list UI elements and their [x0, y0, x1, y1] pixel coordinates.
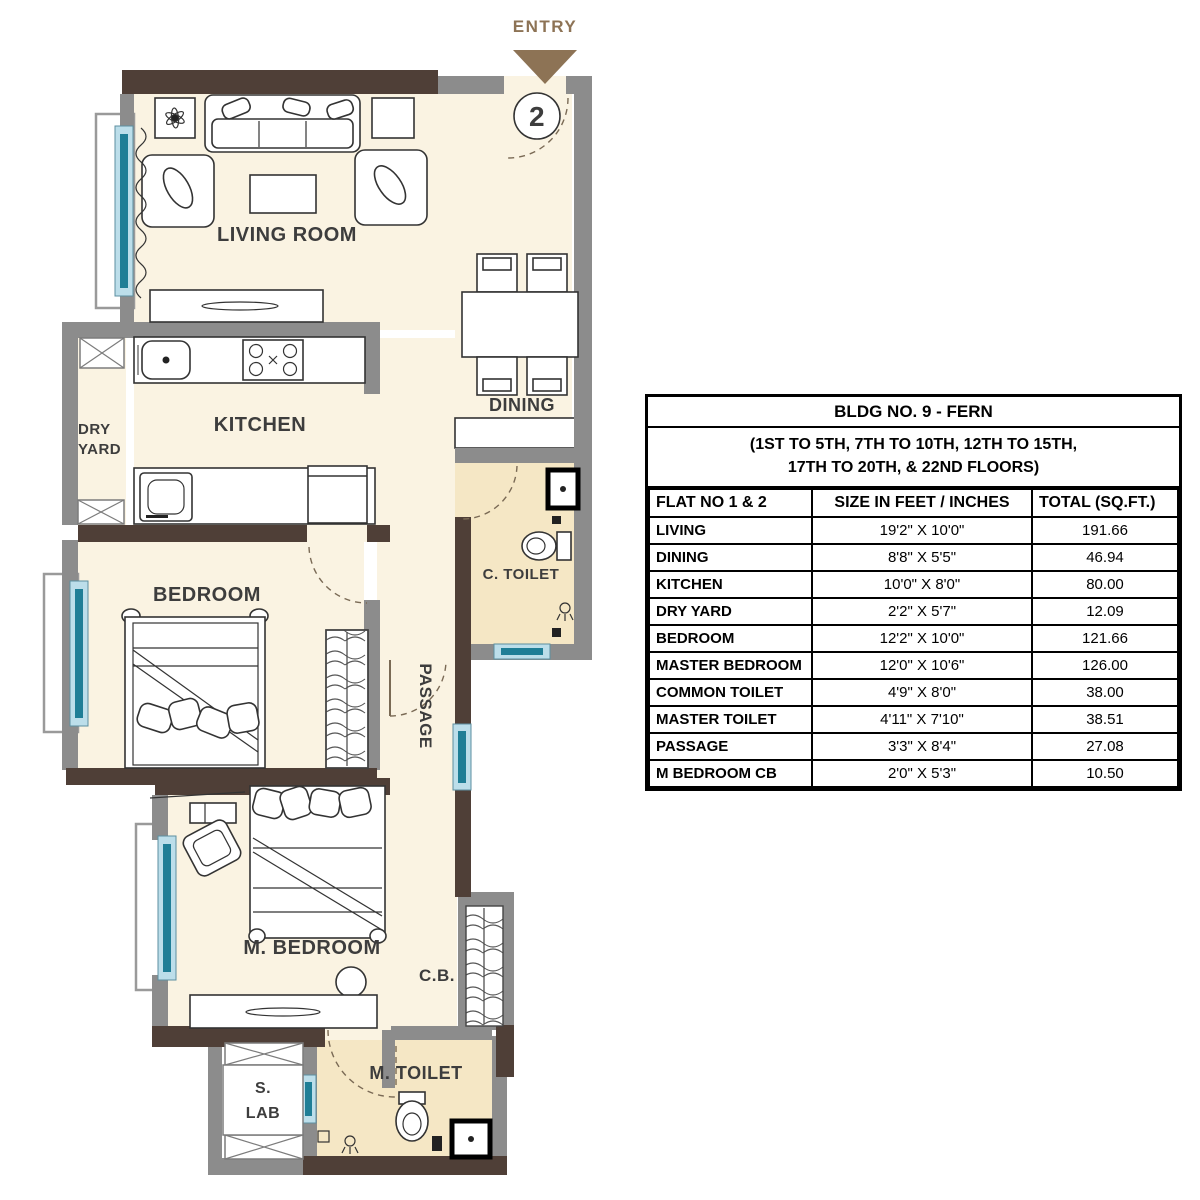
table-row: BEDROOM12'2" X 10'0"121.66: [649, 625, 1178, 652]
cell-size: 19'2" X 10'0": [812, 517, 1032, 544]
entry-label: ENTRY: [513, 17, 578, 36]
size-table-body: LIVING19'2" X 10'0"191.66DINING8'8" X 5'…: [649, 517, 1178, 787]
master-toilet-label: M. TOILET: [369, 1063, 462, 1083]
cell-total: 121.66: [1032, 625, 1178, 652]
cell-size: 12'2" X 10'0": [812, 625, 1032, 652]
plant-stand: [155, 98, 195, 138]
cell-size: 4'9" X 8'0": [812, 679, 1032, 706]
cell-room: LIVING: [649, 517, 812, 544]
table-row: M BEDROOM CB2'0" X 5'3"10.50: [649, 760, 1178, 787]
cell-size: 2'2" X 5'7": [812, 598, 1032, 625]
dining-chair: [477, 254, 517, 292]
s-lab-label-1: S.: [255, 1080, 271, 1097]
coffee-table: [250, 175, 316, 213]
bedroom-bed: [122, 609, 268, 768]
table-header-row: FLAT NO 1 & 2 SIZE IN FEET / INCHES TOTA…: [649, 489, 1178, 517]
cell-size: 10'0" X 8'0": [812, 571, 1032, 598]
unit-number: 2: [529, 101, 545, 132]
cell-size: 4'11" X 7'10": [812, 706, 1032, 733]
master-bedroom-label: M. BEDROOM: [243, 937, 380, 959]
wash-basin: [452, 1121, 490, 1157]
cell-total: 46.94: [1032, 544, 1178, 571]
dining-table: [462, 292, 578, 357]
wc: [396, 1092, 428, 1141]
master-bed: [249, 784, 386, 943]
living-room-label: LIVING ROOM: [217, 224, 357, 246]
cell-size: 8'8" X 5'5": [812, 544, 1032, 571]
dry-yard-duct-bottom: [78, 500, 124, 524]
size-table-grid: FLAT NO 1 & 2 SIZE IN FEET / INCHES TOTA…: [648, 488, 1179, 788]
table-row: PASSAGE3'3" X 8'4"27.08: [649, 733, 1178, 760]
window-passage: [453, 724, 471, 790]
kitchen-sink: [138, 341, 190, 379]
cell-total: 80.00: [1032, 571, 1178, 598]
table-subtitle: (1ST TO 5TH, 7TH TO 10TH, 12TH TO 15TH, …: [648, 428, 1179, 488]
cell-total: 10.50: [1032, 760, 1178, 787]
table-row: KITCHEN10'0" X 8'0"80.00: [649, 571, 1178, 598]
cell-room: MASTER BEDROOM: [649, 652, 812, 679]
s-lab-duct-top: [225, 1043, 303, 1065]
dresser-desk: [190, 995, 377, 1028]
cell-total: 38.00: [1032, 679, 1178, 706]
cell-size: 3'3" X 8'4": [812, 733, 1032, 760]
tap-icon: [552, 516, 561, 524]
area-table: BLDG NO. 9 - FERN (1ST TO 5TH, 7TH TO 10…: [645, 394, 1182, 791]
cell-total: 38.51: [1032, 706, 1178, 733]
cell-room: COMMON TOILET: [649, 679, 812, 706]
armchair-left: [142, 155, 214, 227]
cell-room: DINING: [649, 544, 812, 571]
table-row: MASTER TOILET4'11" X 7'10"38.51: [649, 706, 1178, 733]
dining-chair: [477, 357, 517, 395]
column-header-flat: FLAT NO 1 & 2: [649, 489, 812, 517]
cell-room: BEDROOM: [649, 625, 812, 652]
side-table: [372, 98, 414, 138]
s-lab-box: [223, 1065, 303, 1135]
kitchen-counter-top: [134, 337, 365, 383]
tv-console: [150, 290, 323, 322]
kitchen-counter-bottom: [134, 466, 375, 524]
table-row: DRY YARD2'2" X 5'7"12.09: [649, 598, 1178, 625]
floor-plan-page: ENTRY 2 LIVING ROOM DINING KITCHEN DRY Y…: [0, 0, 1200, 1200]
cell-room: MASTER TOILET: [649, 706, 812, 733]
passage-label: PASSAGE: [416, 663, 435, 748]
table-subtitle-line2: 17TH TO 20TH, & 22ND FLOORS): [648, 456, 1179, 479]
unit-number-badge: 2: [514, 93, 560, 139]
cell-size: 12'0" X 10'6": [812, 652, 1032, 679]
cell-total: 126.00: [1032, 652, 1178, 679]
bedroom-label: BEDROOM: [153, 584, 261, 606]
cell-room: KITCHEN: [649, 571, 812, 598]
s-lab-label-2: LAB: [246, 1105, 280, 1122]
cell-total: 191.66: [1032, 517, 1178, 544]
window-common-toilet: [494, 644, 550, 659]
cupboard-label: C.B.: [419, 966, 455, 985]
wardrobe-bedroom: [326, 630, 368, 768]
dining-chair: [527, 254, 567, 292]
column-header-size: SIZE IN FEET / INCHES: [812, 489, 1032, 517]
armchair-right: [355, 150, 427, 225]
table-row: MASTER BEDROOM12'0" X 10'6"126.00: [649, 652, 1178, 679]
cell-room: DRY YARD: [649, 598, 812, 625]
washing-machine: [140, 473, 192, 521]
kitchen-label: KITCHEN: [214, 414, 306, 436]
table-row: LIVING19'2" X 10'0"191.66: [649, 517, 1178, 544]
drain-icon: [552, 628, 561, 637]
dining-label: DINING: [489, 395, 555, 415]
wash-basin: [548, 470, 578, 508]
window-living: [115, 126, 133, 296]
window-bedroom: [70, 581, 88, 726]
stool: [336, 967, 366, 997]
cell-room: M BEDROOM CB: [649, 760, 812, 787]
wc: [522, 532, 571, 560]
cell-total: 12.09: [1032, 598, 1178, 625]
dry-yard-label-2: YARD: [78, 441, 121, 458]
table-title: BLDG NO. 9 - FERN: [648, 397, 1179, 428]
table-row: COMMON TOILET4'9" X 8'0"38.00: [649, 679, 1178, 706]
dry-yard-duct-top: [80, 338, 124, 368]
cell-room: PASSAGE: [649, 733, 812, 760]
gas-stove: [243, 340, 303, 380]
window-master-bedroom: [158, 836, 176, 980]
dry-yard-label-1: DRY: [78, 421, 111, 438]
cell-size: 2'0" X 5'3": [812, 760, 1032, 787]
common-toilet-label: C. TOILET: [483, 566, 560, 583]
wardrobe-cb: [466, 906, 503, 1026]
sofa: [205, 95, 360, 152]
table-subtitle-line1: (1ST TO 5TH, 7TH TO 10TH, 12TH TO 15TH,: [648, 433, 1179, 456]
fridge: [308, 466, 367, 523]
cell-total: 27.08: [1032, 733, 1178, 760]
s-lab-duct-bottom: [225, 1135, 303, 1159]
dining-chair: [527, 357, 567, 395]
table-row: DINING8'8" X 5'5"46.94: [649, 544, 1178, 571]
column-header-total: TOTAL (SQ.FT.): [1032, 489, 1178, 517]
tap-icon: [432, 1136, 442, 1151]
